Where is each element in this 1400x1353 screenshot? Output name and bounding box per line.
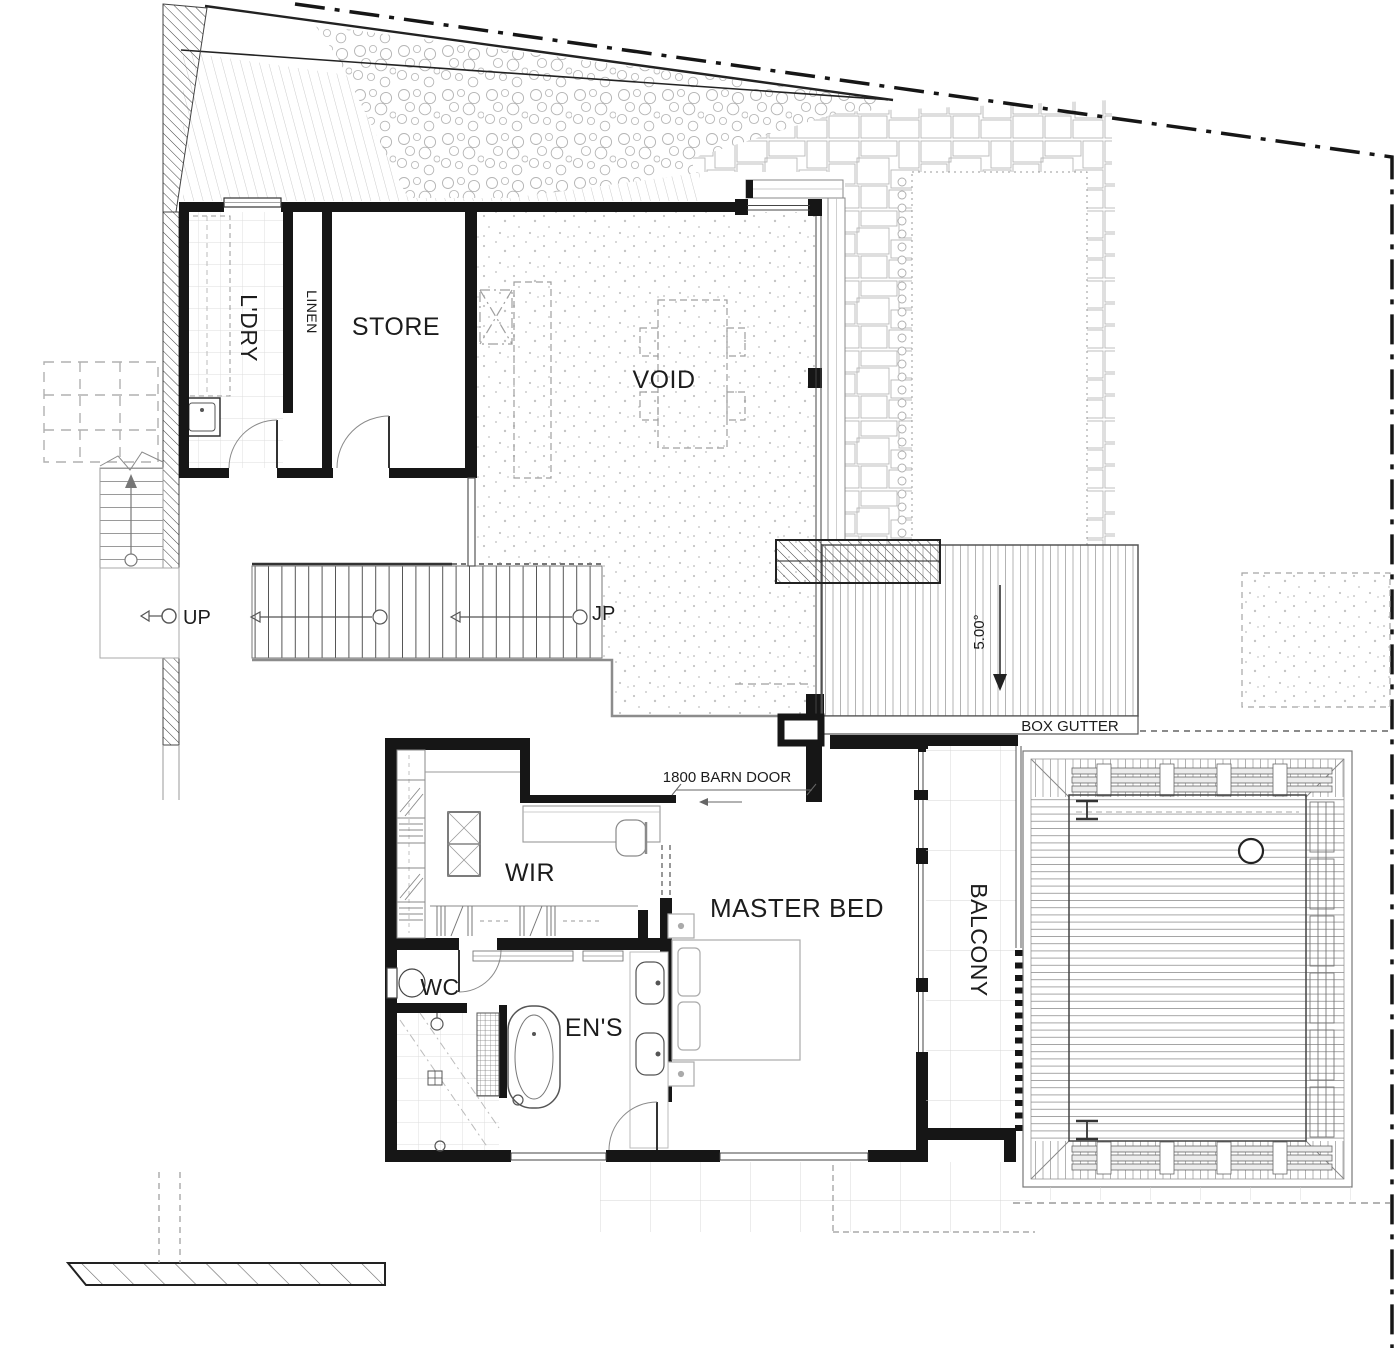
- garden-bed: [1242, 573, 1390, 707]
- retaining-wall: [68, 1263, 385, 1285]
- roof-area: [776, 540, 1138, 734]
- room-label-wc: WC: [420, 974, 459, 1000]
- room-label-void: VOID: [632, 366, 695, 394]
- lower-structure-dashed: [44, 362, 158, 462]
- room-label-store: STORE: [352, 313, 440, 341]
- room-label-ensuite: EN'S: [565, 1014, 623, 1042]
- room-label-laundry: L'DRY: [236, 294, 262, 362]
- bed: [668, 914, 800, 1086]
- column: [781, 717, 821, 743]
- label-up: UP: [183, 607, 211, 629]
- pergola-roof: [1023, 751, 1352, 1187]
- stair-balustrade: [468, 478, 475, 566]
- room-label-master-bed: MASTER BED: [710, 893, 884, 923]
- label-box-gutter: BOX GUTTER: [1021, 718, 1119, 735]
- barn-door-annotation: [672, 784, 816, 802]
- upper-wing: [179, 180, 845, 716]
- floor-plan: L'DRY LINEN STORE VOID UP JP 5.00° BOX G…: [0, 0, 1400, 1353]
- floor-plan-canvas: L'DRY LINEN STORE VOID UP JP 5.00° BOX G…: [0, 0, 1400, 1353]
- room-label-linen: LINEN: [304, 290, 320, 334]
- label-roof-pitch: 5.00°: [971, 614, 988, 649]
- label-jp: JP: [592, 603, 615, 625]
- room-label-balcony: BALCONY: [966, 883, 992, 996]
- room-label-wir: WIR: [505, 859, 555, 887]
- label-barn-door: 1800 BARN DOOR: [663, 769, 792, 786]
- roof-penetration: [1239, 839, 1263, 863]
